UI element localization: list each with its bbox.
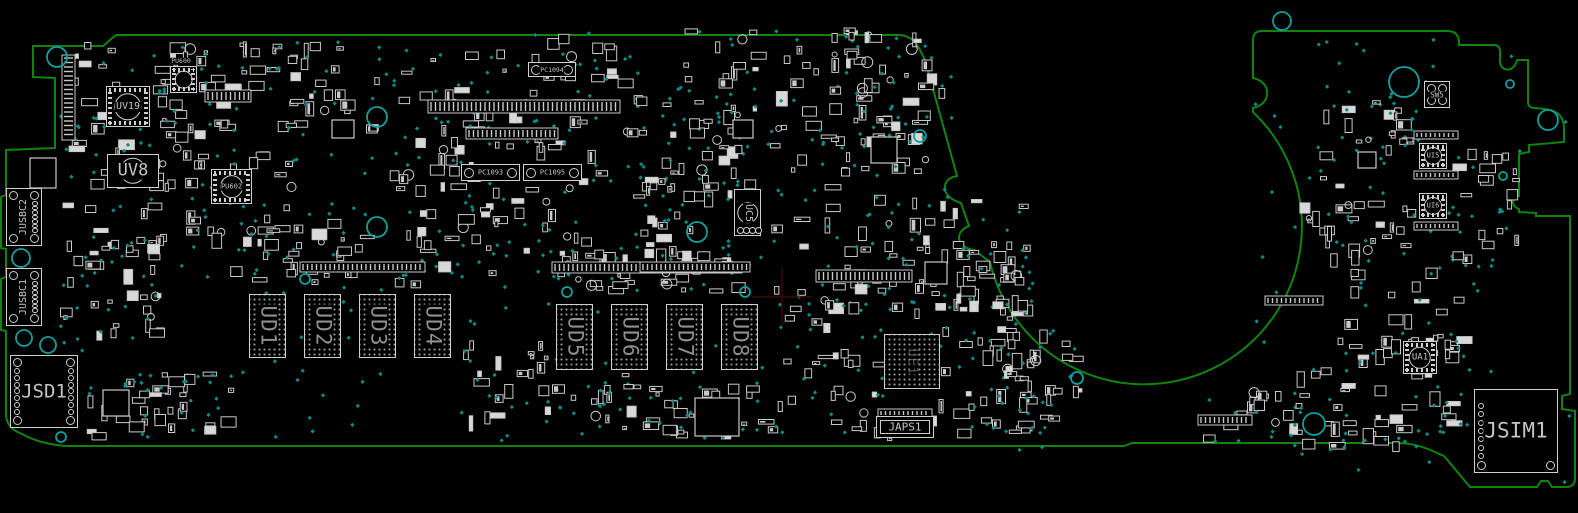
component-ud2[interactable]: UD2: [304, 294, 341, 358]
component-ud4[interactable]: UD4: [414, 294, 451, 358]
component-ud5[interactable]: UD5: [556, 304, 593, 370]
component-pu600[interactable]: PU600: [170, 66, 197, 93]
corner-hole: [9, 271, 18, 280]
corner-hole: [1546, 461, 1555, 470]
refdes-label: UC5: [743, 202, 753, 222]
refdes-label: PC1094: [539, 66, 564, 73]
pad-circle: [526, 168, 536, 178]
refdes-label: UD6: [619, 316, 640, 359]
pin-ticks: [144, 89, 148, 124]
corner-hole: [9, 234, 18, 243]
pad-circle: [569, 168, 579, 178]
refdes-label: UD1: [257, 305, 278, 348]
pin1-circle: [174, 70, 193, 89]
corner-hole: [30, 314, 39, 323]
component-sw5[interactable]: SW5: [1424, 81, 1450, 108]
pin-ticks: [108, 89, 112, 124]
pad-column: [68, 368, 74, 415]
component-ui5[interactable]: UI5: [1419, 143, 1447, 169]
refdes-label: JSIM1: [1483, 421, 1548, 442]
component-ua1[interactable]: UA1: [1403, 341, 1437, 374]
pin-ticks: [246, 172, 250, 201]
component-ud8[interactable]: UD8: [721, 304, 758, 370]
pad-circle: [755, 227, 762, 234]
refdes-label: UD2: [312, 305, 333, 348]
refdes-label: UA1: [1411, 353, 1429, 362]
refdes-label: JUSBC1: [19, 278, 29, 316]
pin-ticks: [1431, 344, 1435, 371]
corner-hole: [9, 314, 18, 323]
refdes-label: PC1093: [477, 169, 504, 176]
component-japs1[interactable]: JAPS1: [876, 416, 934, 438]
corner-hole: [30, 191, 39, 200]
corner-hole: [13, 358, 22, 367]
component-pc1094[interactable]: PC1094: [528, 62, 576, 77]
component-jsim1[interactable]: JSIM1: [1474, 389, 1558, 473]
refdes-label: PU600: [170, 58, 192, 65]
component-pc1093[interactable]: PC1093: [461, 164, 520, 181]
component-uc5[interactable]: UC5: [734, 189, 761, 236]
refdes-label: UI5: [1426, 153, 1441, 160]
refdes-label: UV19: [115, 102, 141, 112]
refdes-label: UI6: [1426, 203, 1441, 210]
refdes-label: UE1: [906, 347, 919, 375]
corner-hole: [1477, 461, 1486, 470]
pin-ticks: [109, 121, 147, 125]
refdes-label: UV8: [117, 163, 150, 180]
component-ud3[interactable]: UD3: [359, 294, 396, 358]
component-ud7[interactable]: UD7: [666, 304, 703, 370]
components-layer: JUSBC2JUSBC1JSD1JSIM1UV19UV8PU600PU602PC…: [0, 0, 1578, 513]
refdes-label: JAPS1: [887, 422, 922, 433]
corner-hole: [30, 234, 39, 243]
corner-hole: [9, 191, 18, 200]
corner-hole: [30, 271, 39, 280]
component-uv19[interactable]: UV19: [106, 86, 150, 127]
refdes-label: PU602: [220, 183, 243, 190]
refdes-label: UD5: [564, 316, 585, 359]
pad-column: [32, 281, 38, 313]
component-pc1095[interactable]: PC1095: [523, 164, 582, 181]
corner-hole: [66, 416, 75, 425]
pad-column: [32, 201, 38, 233]
refdes-label: SW5: [1429, 91, 1445, 99]
component-pu602[interactable]: PU602: [211, 169, 252, 204]
refdes-label: UD8: [729, 316, 750, 359]
component-jusbc1[interactable]: JUSBC1: [6, 268, 42, 326]
component-uv8[interactable]: UV8: [107, 154, 159, 188]
pin-ticks: [109, 88, 147, 92]
refdes-label: JSD1: [20, 382, 68, 401]
corner-hole: [13, 416, 22, 425]
pin-ticks: [214, 198, 249, 202]
refdes-label: PC1095: [539, 169, 566, 176]
component-jusbc2[interactable]: JUSBC2: [6, 188, 42, 246]
pad-column: [14, 368, 20, 415]
refdes-label: UD4: [422, 305, 443, 348]
pad-circle: [507, 168, 517, 178]
component-ue1[interactable]: UE1: [884, 334, 940, 389]
component-jsd1[interactable]: JSD1: [10, 355, 78, 428]
component-ui6[interactable]: UI6: [1419, 193, 1447, 219]
pad-circle: [464, 168, 474, 178]
corner-hole: [66, 358, 75, 367]
refdes-label: UD3: [367, 305, 388, 348]
pin-ticks: [213, 172, 217, 201]
pin-ticks: [1406, 368, 1434, 372]
refdes-label: UD7: [674, 316, 695, 359]
refdes-label: JUSBC2: [19, 198, 29, 236]
boardview-canvas[interactable]: JUSBC2JUSBC1JSD1JSIM1UV19UV8PU600PU602PC…: [0, 0, 1578, 513]
component-ud6[interactable]: UD6: [611, 304, 648, 370]
component-ud1[interactable]: UD1: [249, 294, 286, 358]
